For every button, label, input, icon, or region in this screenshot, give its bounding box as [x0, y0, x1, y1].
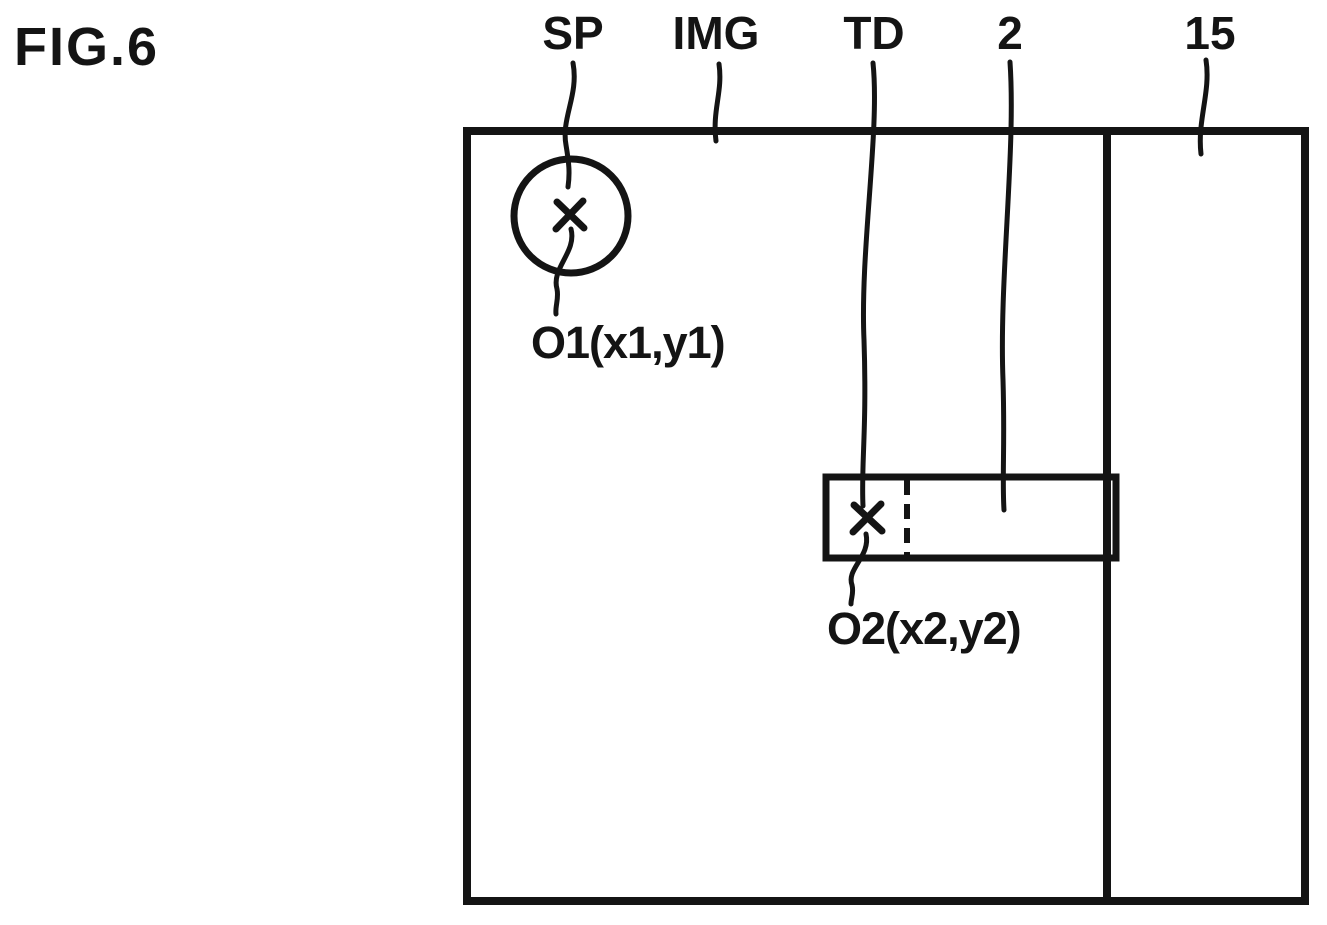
leader-line-ref-15 [1200, 60, 1207, 154]
display-panel-frame [467, 131, 1305, 901]
patent-figure-canvas: FIG.6 SP IMG TD 2 15 O1(x1,y1) O2(x2,y2) [0, 0, 1327, 925]
x-cross-mark-o1-icon [556, 201, 584, 229]
leader-line-sp [565, 63, 574, 187]
diagram-artwork [0, 0, 1327, 925]
label-point-o2: O2(x2,y2) [827, 606, 1021, 651]
x-cross-mark-o2-icon [853, 504, 882, 532]
label-point-o1: O1(x1,y1) [531, 320, 725, 365]
leader-line-o2 [851, 534, 867, 604]
